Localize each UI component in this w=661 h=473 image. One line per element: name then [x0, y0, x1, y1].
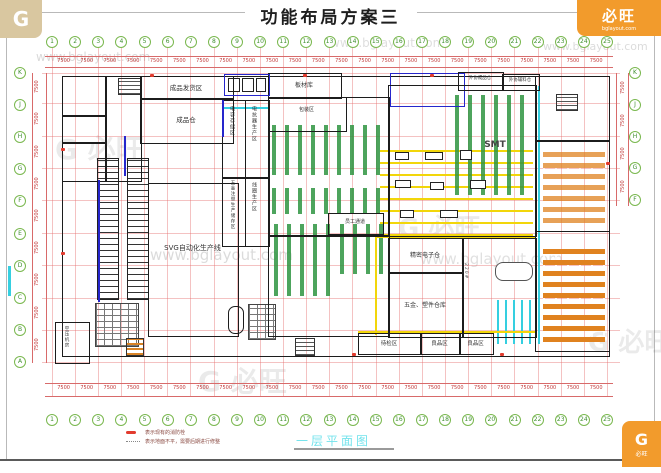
- room-packing-label: 包装区: [268, 106, 345, 113]
- grid-numbers-top: 1234567891011121314151617181920212223242…: [46, 36, 613, 48]
- fire-hydrant-mark: [303, 74, 307, 77]
- fire-hydrant-mark: [61, 148, 65, 151]
- dim-label: 7500: [104, 58, 117, 64]
- grid-bubble: 10: [254, 36, 266, 48]
- drawing-caption: 一层平面图: [296, 432, 371, 449]
- grid-bubble: 21: [509, 36, 521, 48]
- grid-bubble: 10: [254, 414, 266, 426]
- grid-bubble: H: [629, 131, 641, 143]
- grid-bubble: 18: [439, 414, 451, 426]
- room-capacitor-storage-label: 电容存储区: [229, 106, 236, 174]
- sheet-bottom-rule: [0, 459, 661, 461]
- room-svg-line: [148, 183, 239, 337]
- dimension-line: [616, 73, 617, 206]
- fire-hydrant-mark: [430, 74, 434, 77]
- grid-bubble: 3: [92, 36, 104, 48]
- grid-bubble: 5: [139, 36, 151, 48]
- dimension-line: [45, 56, 613, 57]
- grid-bubble: 17: [416, 414, 428, 426]
- dim-label: 7500: [266, 385, 279, 391]
- grid-bubble: K: [14, 67, 26, 79]
- loading-dock-area: [462, 238, 537, 338]
- smt-hall: [388, 85, 537, 237]
- grid-bubble: 11: [277, 36, 289, 48]
- dim-label: 7500: [590, 385, 603, 391]
- dim-label: 7500: [266, 58, 279, 64]
- dim-label: 7500: [358, 385, 371, 391]
- brand-logo-topleft: G: [0, 0, 42, 38]
- grid-bubble: J: [629, 99, 641, 111]
- grid-bubble: 19: [462, 36, 474, 48]
- grid-bubble: A: [14, 356, 26, 368]
- grid-bubble: 1: [46, 36, 58, 48]
- grid-bubble: 2: [69, 414, 81, 426]
- legend-text: 表示地面不平，需要后期进行修整: [145, 438, 220, 445]
- grid-bubble: 23: [555, 36, 567, 48]
- dimension-line: [45, 67, 613, 68]
- page-title: 功能布局方案三: [0, 3, 661, 28]
- grid-bubble: 7: [185, 36, 197, 48]
- dim-label: 7500: [34, 278, 40, 286]
- dim-label: 7500: [381, 385, 394, 391]
- grid-bubble: D: [14, 260, 26, 272]
- grid-bubble: 24: [578, 36, 590, 48]
- office-room-1: [535, 76, 610, 142]
- dim-label: 7500: [428, 385, 441, 391]
- grid-bubble: 4: [115, 414, 127, 426]
- hydrant-symbol: [126, 431, 136, 434]
- dim-label: 7500: [451, 385, 464, 391]
- dim-label: 7500: [520, 385, 533, 391]
- dim-label: 7500: [620, 119, 626, 127]
- grid-bubble: 8: [208, 414, 220, 426]
- dim-label: 7500: [57, 58, 70, 64]
- grid-bubble: 9: [231, 414, 243, 426]
- room-staff-corridor-label: 员工通道: [328, 218, 382, 225]
- grid-bubble: 22: [532, 36, 544, 48]
- grid-letters-left: KJHGFEDCBA: [14, 67, 26, 368]
- grid-bubble: F: [14, 195, 26, 207]
- grid-bubble: 13: [324, 414, 336, 426]
- room-good-area-2-label: 良品区: [459, 339, 492, 347]
- dim-label: 7500: [312, 58, 325, 64]
- fire-hydrant-mark: [352, 353, 356, 356]
- grid-bubble: 9: [231, 36, 243, 48]
- dim-label: 7500: [34, 117, 40, 125]
- dim-label: 7500: [497, 385, 510, 391]
- grid-bubble: C: [14, 292, 26, 304]
- grid-bubble: F: [629, 194, 641, 206]
- grid-bubble: 8: [208, 36, 220, 48]
- brand-logo-topright: 必旺 bglayout.com: [577, 0, 661, 36]
- room-outsourced-materials-label: 外协辅料仓: [502, 77, 538, 83]
- dim-label: 7500: [80, 385, 93, 391]
- dim-label: 7500: [104, 385, 117, 391]
- dim-label: 7500: [405, 385, 418, 391]
- grid-numbers-bottom: 1234567891011121314151617181920212223242…: [46, 414, 613, 426]
- dim-label: 7500: [242, 58, 255, 64]
- dim-label: 7500: [173, 58, 186, 64]
- grid-bubble: 6: [162, 414, 174, 426]
- room-outsourced-finished-label: 外协成品仓: [458, 75, 502, 81]
- grid-bubble: J: [14, 99, 26, 111]
- legend-item: 表示现有的消防栓: [126, 428, 220, 437]
- dim-label: 7500: [497, 58, 510, 64]
- grid-bubble: 6: [162, 36, 174, 48]
- dim-label: 7500: [451, 58, 464, 64]
- dim-label: 7500: [428, 58, 441, 64]
- utility-room: [62, 76, 107, 117]
- dock-number-label: 220#: [463, 263, 468, 285]
- room-coil-production-label: 线圈生产区: [251, 182, 258, 242]
- room-reactor-production-label: 电抗器生产区: [251, 106, 258, 174]
- legend: 表示现有的消防栓 表示地面不平，需要后期进行修整: [126, 428, 220, 446]
- utility-room: [62, 142, 107, 182]
- dim-label: 7500: [173, 385, 186, 391]
- grid-bubble: 25: [601, 36, 613, 48]
- brand-logo-bottomright: G 必旺: [622, 421, 661, 467]
- smt-label: SMT: [470, 140, 520, 150]
- grid-letters-right: KJHGF: [629, 67, 641, 206]
- dim-label: 7500: [34, 150, 40, 158]
- meeting-table: [228, 306, 244, 334]
- grid-bubble: H: [14, 131, 26, 143]
- dim-label: 7500: [312, 385, 325, 391]
- dim-label: 7500: [80, 58, 93, 64]
- bay-dimensions-top: 7500750075007500750075007500750075007500…: [52, 58, 608, 64]
- blue-wall-segment: [124, 136, 126, 176]
- room-good-area-1-label: 良品区: [420, 339, 459, 347]
- dim-label: 7500: [219, 385, 232, 391]
- dim-label: 7500: [34, 214, 40, 222]
- grid-bubble: 14: [347, 36, 359, 48]
- dim-label: 7500: [590, 58, 603, 64]
- dim-label: 7500: [289, 58, 302, 64]
- dim-label: 7500: [567, 58, 580, 64]
- dim-label: 7500: [242, 385, 255, 391]
- bay-dimensions-right: 7500750075007500: [619, 73, 627, 205]
- dim-label: 7500: [34, 311, 40, 319]
- utility-room: [62, 115, 107, 144]
- grid-bubble: 16: [393, 36, 405, 48]
- grid-bubble: 5: [139, 414, 151, 426]
- cyan-accent: [8, 266, 11, 296]
- dim-label: 7500: [620, 152, 626, 160]
- dim-label: 7500: [405, 58, 418, 64]
- grid-bubble: 4: [115, 36, 127, 48]
- legend-text: 表示现有的消防栓: [145, 429, 185, 436]
- grid-bubble: 20: [485, 414, 497, 426]
- grid-bubble: 18: [439, 36, 451, 48]
- dim-label: 7500: [335, 58, 348, 64]
- grid-bubble: 14: [347, 414, 359, 426]
- dim-label: 7500: [474, 385, 487, 391]
- dim-label: 7500: [543, 385, 556, 391]
- uneven-floor-symbol: [126, 441, 140, 442]
- dim-label: 7500: [150, 385, 163, 391]
- grid-bubble: 11: [277, 414, 289, 426]
- caption-underline: [294, 448, 394, 450]
- dim-label: 7500: [34, 85, 40, 93]
- grid-bubble: 15: [370, 36, 382, 48]
- grid-bubble: 22: [532, 414, 544, 426]
- room-injection-label: 五金注塑生产储存区: [229, 180, 235, 244]
- room-shipping-label: 成品发货区: [140, 82, 232, 92]
- grid-bubble: G: [14, 163, 26, 175]
- blue-wall-segment: [98, 180, 100, 302]
- room-svg-line-label: SVG自动化生产线: [148, 243, 237, 253]
- room-finished-warehouse-label: 成品仓: [140, 114, 232, 124]
- grid-bubble: 12: [300, 414, 312, 426]
- grid-bubble: 21: [509, 414, 521, 426]
- grid-bubble: 1: [46, 414, 58, 426]
- grid-bubble: 23: [555, 414, 567, 426]
- room-hardware-plastic-label: 五金、塑件仓库: [388, 300, 462, 309]
- legend-item: 表示地面不平，需要后期进行修整: [126, 437, 220, 446]
- grid-bubble: 13: [324, 36, 336, 48]
- room-pending-inspection-label: 待检区: [358, 339, 420, 347]
- fire-hydrant-mark: [500, 353, 504, 356]
- dim-label: 7500: [34, 343, 40, 351]
- grid-bubble: 12: [300, 36, 312, 48]
- dimension-line: [46, 73, 47, 363]
- grid-line-vertical: [52, 47, 53, 396]
- dim-label: 7500: [57, 385, 70, 391]
- dim-label: 7500: [335, 385, 348, 391]
- grid-bubble: E: [14, 228, 26, 240]
- production-hall-2: [268, 235, 390, 337]
- dim-label: 7500: [567, 385, 580, 391]
- watermark-logo: G 必旺: [198, 360, 287, 400]
- fire-hydrant-mark: [61, 252, 65, 255]
- dim-label: 7500: [196, 58, 209, 64]
- grid-line-horizontal: [42, 362, 620, 363]
- grid-bubble: 16: [393, 414, 405, 426]
- dim-label: 7500: [34, 246, 40, 254]
- dim-label: 7500: [620, 185, 626, 193]
- office-room-2: [535, 140, 610, 232]
- grid-bubble: 15: [370, 414, 382, 426]
- dim-label: 7500: [150, 58, 163, 64]
- grid-bubble: 19: [462, 414, 474, 426]
- dim-label: 7500: [358, 58, 371, 64]
- bay-dimensions-left: 750075007500750075007500750075007500: [33, 73, 41, 363]
- dim-label: 7500: [543, 58, 556, 64]
- grid-bubble: 24: [578, 414, 590, 426]
- grid-bubble: 7: [185, 414, 197, 426]
- bay-dimensions-bottom: 7500750075007500750075007500750075007500…: [52, 385, 608, 391]
- grid-bubble: K: [629, 67, 641, 79]
- grid-bubble: 17: [416, 36, 428, 48]
- grid-bubble: 25: [601, 414, 613, 426]
- dimension-line: [45, 383, 613, 384]
- dim-label: 7500: [196, 385, 209, 391]
- room-precision-warehouse-label: 精密电子仓: [388, 250, 462, 259]
- grid-bubble: 2: [69, 36, 81, 48]
- grid-bubble: 3: [92, 414, 104, 426]
- fire-hydrant-mark: [150, 74, 154, 77]
- dim-label: 7500: [127, 58, 140, 64]
- room-compressor: [55, 322, 90, 364]
- room-sheet-warehouse-label: 板材库: [268, 80, 340, 89]
- dim-label: 7500: [620, 86, 626, 94]
- grid-bubble: B: [14, 324, 26, 336]
- dim-label: 7500: [219, 58, 232, 64]
- dim-label: 7500: [289, 385, 302, 391]
- dimension-line: [45, 396, 613, 397]
- dim-label: 7500: [34, 182, 40, 190]
- dim-label: 7500: [381, 58, 394, 64]
- floor-plan-sheet: www.bglayout.com www.bglayout.com www.bg…: [0, 0, 661, 473]
- room-compressor-label: 空压机房: [63, 326, 69, 360]
- grid-bubble: 20: [485, 36, 497, 48]
- dim-label: 7500: [127, 385, 140, 391]
- grid-bubble: G: [629, 162, 641, 174]
- dim-label: 7500: [474, 58, 487, 64]
- fire-hydrant-mark: [606, 162, 610, 165]
- dim-label: 7500: [520, 58, 533, 64]
